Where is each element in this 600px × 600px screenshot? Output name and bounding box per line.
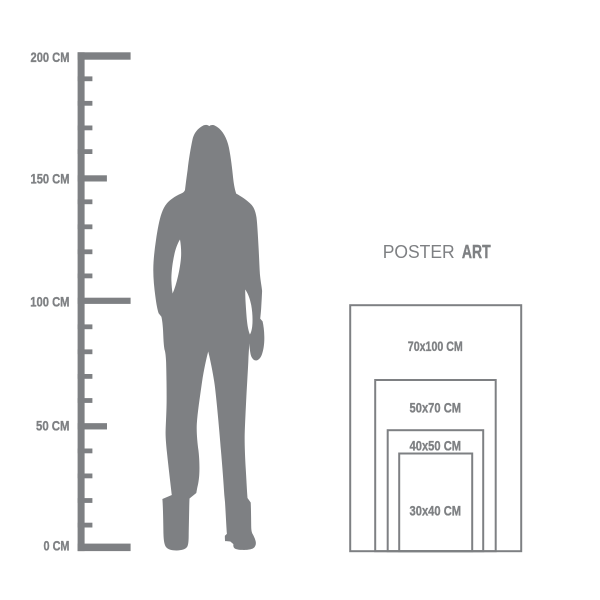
svg-text:50 CM: 50 CM [36,418,70,434]
svg-text:100 CM: 100 CM [30,295,69,311]
svg-text:70x100 CM: 70x100 CM [408,338,463,354]
svg-text:40x50 CM: 40x50 CM [410,438,462,454]
svg-text:POSTER: POSTER [383,242,455,262]
svg-text:0 CM: 0 CM [44,538,70,554]
svg-text:200 CM: 200 CM [31,50,70,66]
svg-text:ART: ART [462,242,491,262]
svg-text:30x40 CM: 30x40 CM [410,503,462,519]
svg-text:150 CM: 150 CM [31,171,70,187]
svg-text:50x70 CM: 50x70 CM [410,400,462,416]
